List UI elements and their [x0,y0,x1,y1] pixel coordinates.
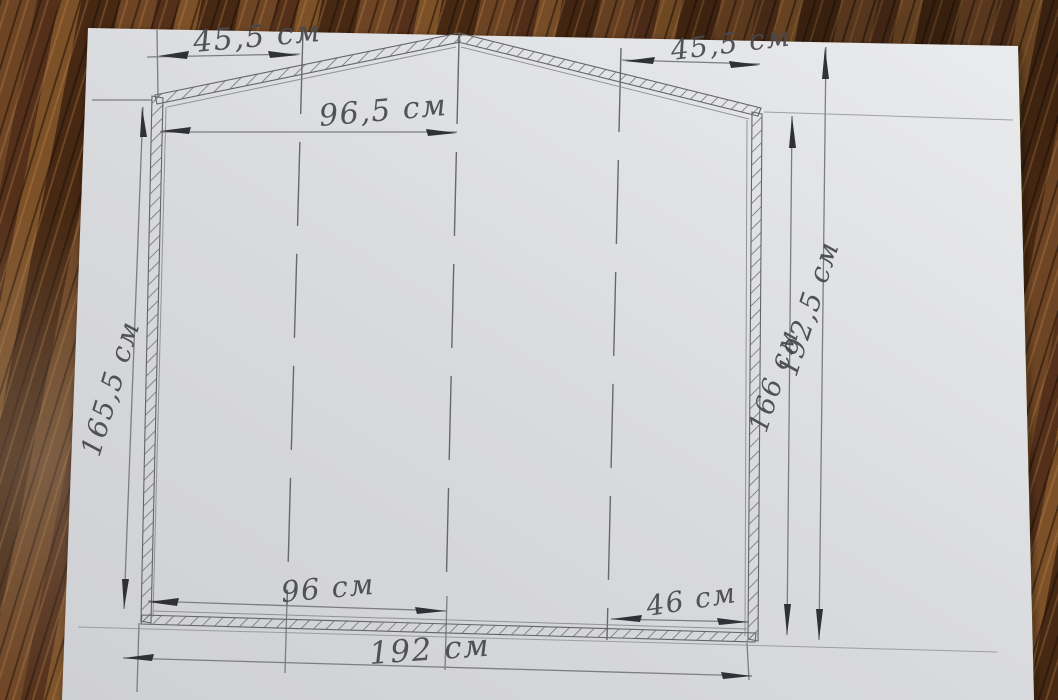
gable-wall-sketch: 45,5 см 45,5 см 96,5 см 96 см 46 см 192 … [0,0,1058,700]
photo-of-hand-drawn-sketch: 45,5 см 45,5 см 96,5 см 96 см 46 см 192 … [0,0,1058,700]
paper-sheet [62,28,1034,700]
